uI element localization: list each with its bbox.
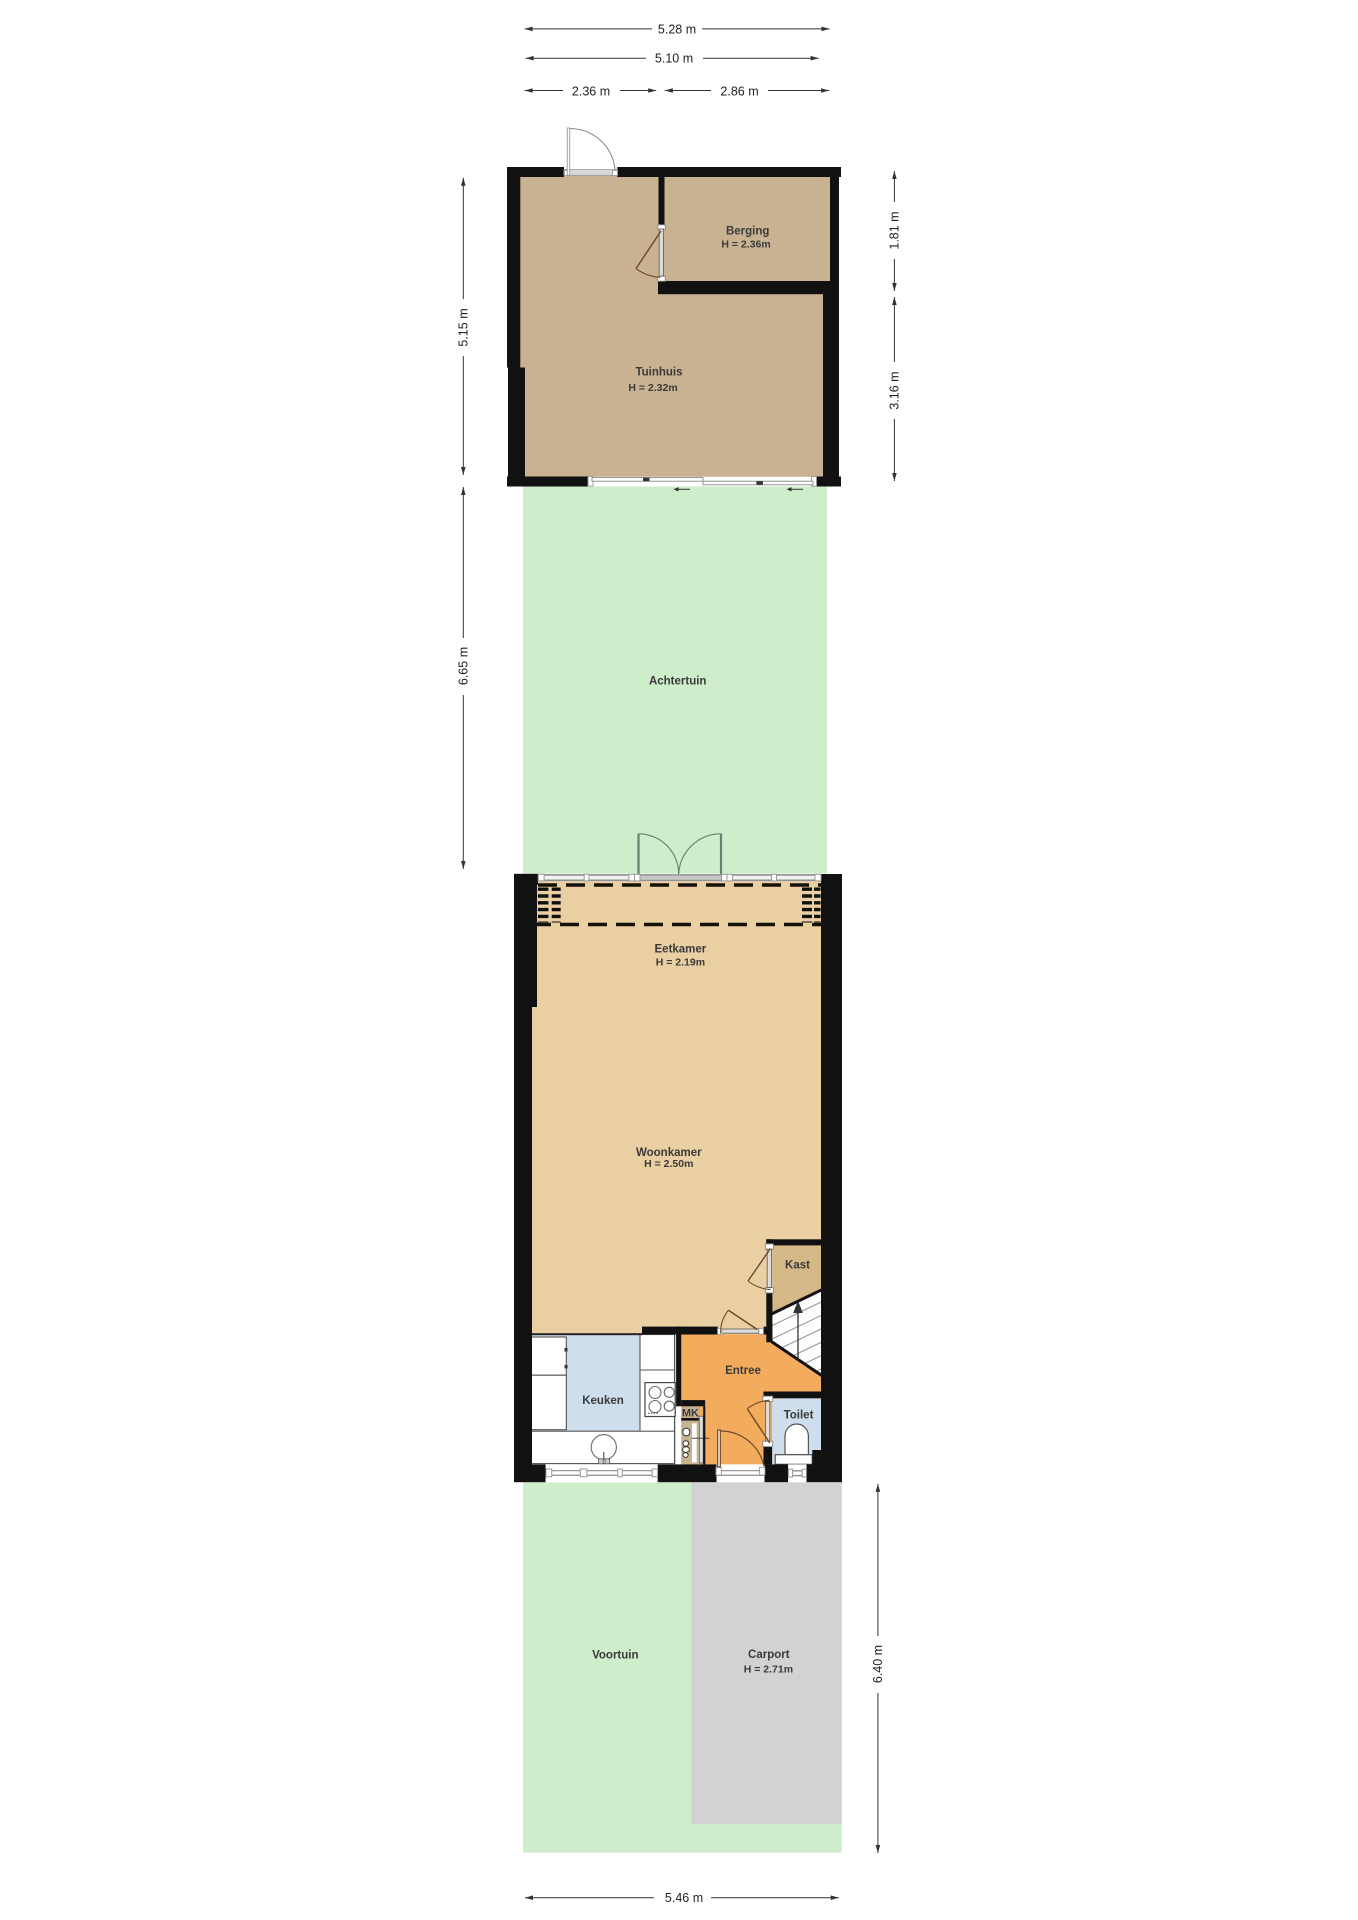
svg-text:2.36 m: 2.36 m	[572, 84, 610, 98]
svg-text:5.10 m: 5.10 m	[655, 52, 693, 66]
svg-text:5.46 m: 5.46 m	[665, 1891, 703, 1905]
svg-text:2.86 m: 2.86 m	[720, 84, 758, 98]
svg-text:Tuinhuis: Tuinhuis	[635, 367, 682, 379]
svg-text:Carport: Carport	[748, 1649, 790, 1661]
svg-text:Voortuin: Voortuin	[592, 1650, 638, 1662]
svg-text:6.40 m: 6.40 m	[871, 1645, 885, 1683]
svg-text:Berging: Berging	[726, 225, 769, 237]
svg-text:3.16 m: 3.16 m	[887, 371, 901, 409]
svg-text:Achtertuin: Achtertuin	[649, 675, 707, 687]
svg-text:H = 2.50m: H = 2.50m	[644, 1158, 693, 1170]
svg-text:5.28 m: 5.28 m	[658, 22, 696, 36]
svg-text:H = 2.32m: H = 2.32m	[628, 382, 677, 394]
svg-text:6.65 m: 6.65 m	[456, 647, 470, 685]
svg-text:1.81 m: 1.81 m	[887, 211, 901, 249]
svg-text:H = 2.71m: H = 2.71m	[744, 1664, 793, 1676]
svg-text:MK: MK	[682, 1408, 699, 1420]
svg-text:H = 2.19m: H = 2.19m	[656, 957, 705, 969]
svg-text:Kast: Kast	[785, 1260, 810, 1272]
svg-text:Toilet: Toilet	[784, 1409, 814, 1421]
svg-text:H = 2.36m: H = 2.36m	[721, 239, 770, 251]
svg-text:Eetkamer: Eetkamer	[655, 944, 707, 956]
svg-text:Entree: Entree	[725, 1365, 761, 1377]
svg-text:5.15 m: 5.15 m	[456, 308, 470, 346]
svg-text:Keuken: Keuken	[582, 1395, 624, 1407]
